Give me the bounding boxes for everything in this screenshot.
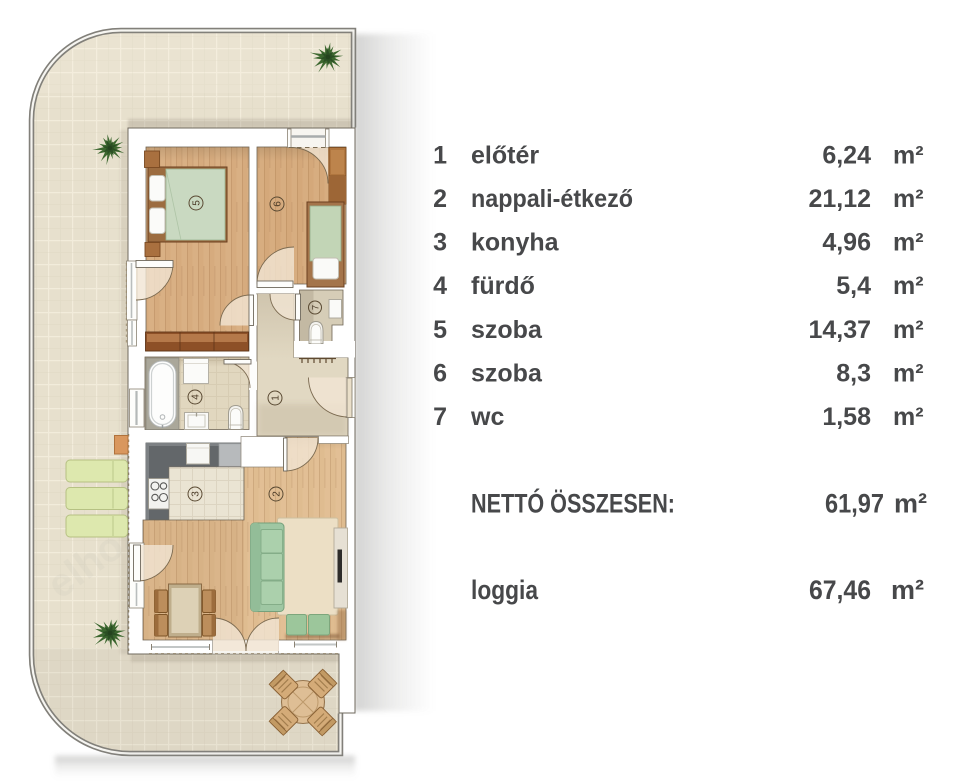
svg-text:wc: wc xyxy=(470,403,504,431)
svg-text:m²: m² xyxy=(891,575,924,605)
svg-text:67,46: 67,46 xyxy=(809,575,871,605)
svg-text:7: 7 xyxy=(433,403,447,431)
svg-text:6: 6 xyxy=(272,201,283,207)
svg-text:1: 1 xyxy=(433,142,447,170)
svg-text:fürdő: fürdő xyxy=(471,272,535,300)
svg-text:2: 2 xyxy=(271,491,282,497)
svg-text:6: 6 xyxy=(433,359,447,387)
svg-text:6,24: 6,24 xyxy=(822,142,871,170)
svg-text:4: 4 xyxy=(190,394,201,400)
svg-text:61,97: 61,97 xyxy=(825,489,884,519)
svg-text:m²: m² xyxy=(893,185,924,213)
svg-text:szoba: szoba xyxy=(471,316,543,344)
svg-text:m²: m² xyxy=(893,403,924,431)
svg-text:m²: m² xyxy=(893,316,924,344)
svg-text:m²: m² xyxy=(894,489,927,519)
svg-text:m²: m² xyxy=(893,142,924,170)
svg-text:konyha: konyha xyxy=(471,229,560,257)
svg-text:3: 3 xyxy=(433,229,447,257)
svg-text:m²: m² xyxy=(893,272,924,300)
svg-text:1,58: 1,58 xyxy=(822,403,871,431)
svg-text:5: 5 xyxy=(191,200,202,206)
svg-text:1: 1 xyxy=(270,395,281,401)
svg-text:4: 4 xyxy=(433,272,447,300)
svg-text:2: 2 xyxy=(433,185,447,213)
svg-text:NETTÓ ÖSSZESEN:: NETTÓ ÖSSZESEN: xyxy=(471,488,675,519)
svg-text:21,12: 21,12 xyxy=(808,185,871,213)
svg-text:3: 3 xyxy=(190,491,201,497)
svg-text:m²: m² xyxy=(893,229,924,257)
svg-text:nappali-étkező: nappali-étkező xyxy=(471,185,633,213)
svg-text:m²: m² xyxy=(893,359,924,387)
svg-text:14,37: 14,37 xyxy=(808,316,871,344)
svg-text:8,3: 8,3 xyxy=(836,359,871,387)
svg-text:szoba: szoba xyxy=(471,359,543,387)
svg-text:5: 5 xyxy=(433,316,447,344)
svg-text:loggia: loggia xyxy=(471,575,539,605)
svg-text:4,96: 4,96 xyxy=(822,229,871,257)
svg-text:5,4: 5,4 xyxy=(836,272,871,300)
svg-text:7: 7 xyxy=(310,305,321,310)
svg-text:előtér: előtér xyxy=(471,142,539,170)
